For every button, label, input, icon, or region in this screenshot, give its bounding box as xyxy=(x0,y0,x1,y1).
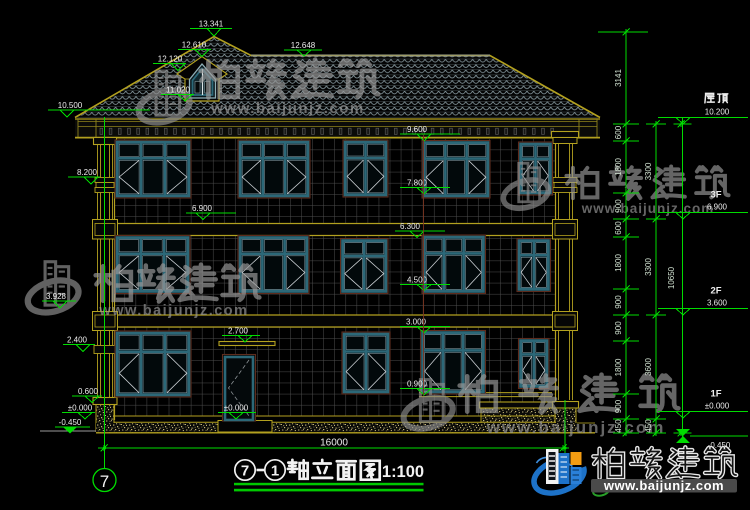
svg-text:7: 7 xyxy=(241,463,249,480)
svg-text:±0.000: ±0.000 xyxy=(68,404,93,413)
svg-text:1800: 1800 xyxy=(614,254,623,272)
svg-text:12.648: 12.648 xyxy=(291,41,316,50)
svg-text:16000: 16000 xyxy=(320,438,348,449)
svg-text:2F: 2F xyxy=(710,286,721,297)
svg-text:900: 900 xyxy=(614,399,623,413)
svg-text:1: 1 xyxy=(271,463,279,480)
svg-text:2.700: 2.700 xyxy=(228,327,249,336)
svg-text:7.800: 7.800 xyxy=(407,179,428,188)
svg-text:1800: 1800 xyxy=(614,158,623,176)
svg-text:3.600: 3.600 xyxy=(707,299,728,308)
svg-text:3141: 3141 xyxy=(614,69,623,87)
svg-text:450: 450 xyxy=(644,419,653,433)
svg-text:6.900: 6.900 xyxy=(192,204,213,213)
svg-text:±0.000: ±0.000 xyxy=(705,402,730,411)
svg-text:12.610: 12.610 xyxy=(182,41,207,50)
svg-text:1800: 1800 xyxy=(614,358,623,376)
svg-text:12.120: 12.120 xyxy=(158,55,183,64)
svg-text:www.baijunjz.com: www.baijunjz.com xyxy=(210,100,364,117)
svg-text:www.baijunjz.com: www.baijunjz.com xyxy=(603,478,724,493)
svg-text:0.600: 0.600 xyxy=(78,387,99,396)
svg-text:900: 900 xyxy=(614,321,623,335)
svg-text:9.600: 9.600 xyxy=(407,125,428,134)
svg-text:7: 7 xyxy=(100,472,109,491)
svg-text:8.200: 8.200 xyxy=(77,168,98,177)
svg-text:www.baijunjz.com: www.baijunjz.com xyxy=(98,303,248,319)
svg-text:3600: 3600 xyxy=(644,358,653,376)
svg-text:10.200: 10.200 xyxy=(705,108,730,117)
svg-text:2.400: 2.400 xyxy=(67,336,88,345)
svg-text:900: 900 xyxy=(614,199,623,213)
svg-text:6.900: 6.900 xyxy=(707,203,728,212)
svg-text:3300: 3300 xyxy=(644,258,653,276)
svg-text:13.341: 13.341 xyxy=(199,20,224,29)
svg-text:4.500: 4.500 xyxy=(407,276,428,285)
svg-text:1F: 1F xyxy=(710,389,721,400)
svg-text:600: 600 xyxy=(614,125,623,139)
svg-text:450: 450 xyxy=(614,419,623,433)
svg-text:www.baijunjz.com: www.baijunjz.com xyxy=(581,201,715,216)
svg-text:3F: 3F xyxy=(710,190,721,201)
svg-text:10.500: 10.500 xyxy=(58,101,83,110)
svg-text:1:100: 1:100 xyxy=(382,463,424,481)
svg-text:0.900: 0.900 xyxy=(407,380,428,389)
svg-text:3.928: 3.928 xyxy=(46,292,67,301)
svg-text:900: 900 xyxy=(614,295,623,309)
svg-text:3300: 3300 xyxy=(644,162,653,180)
svg-text:±0.000: ±0.000 xyxy=(224,404,249,413)
svg-text:6.300: 6.300 xyxy=(400,222,421,231)
svg-text:600: 600 xyxy=(614,221,623,235)
svg-text:11.020: 11.020 xyxy=(166,86,190,95)
svg-text:www.baijunjz.com: www.baijunjz.com xyxy=(486,418,666,437)
svg-text:-0.450: -0.450 xyxy=(59,418,82,427)
svg-text:10650: 10650 xyxy=(667,266,676,289)
